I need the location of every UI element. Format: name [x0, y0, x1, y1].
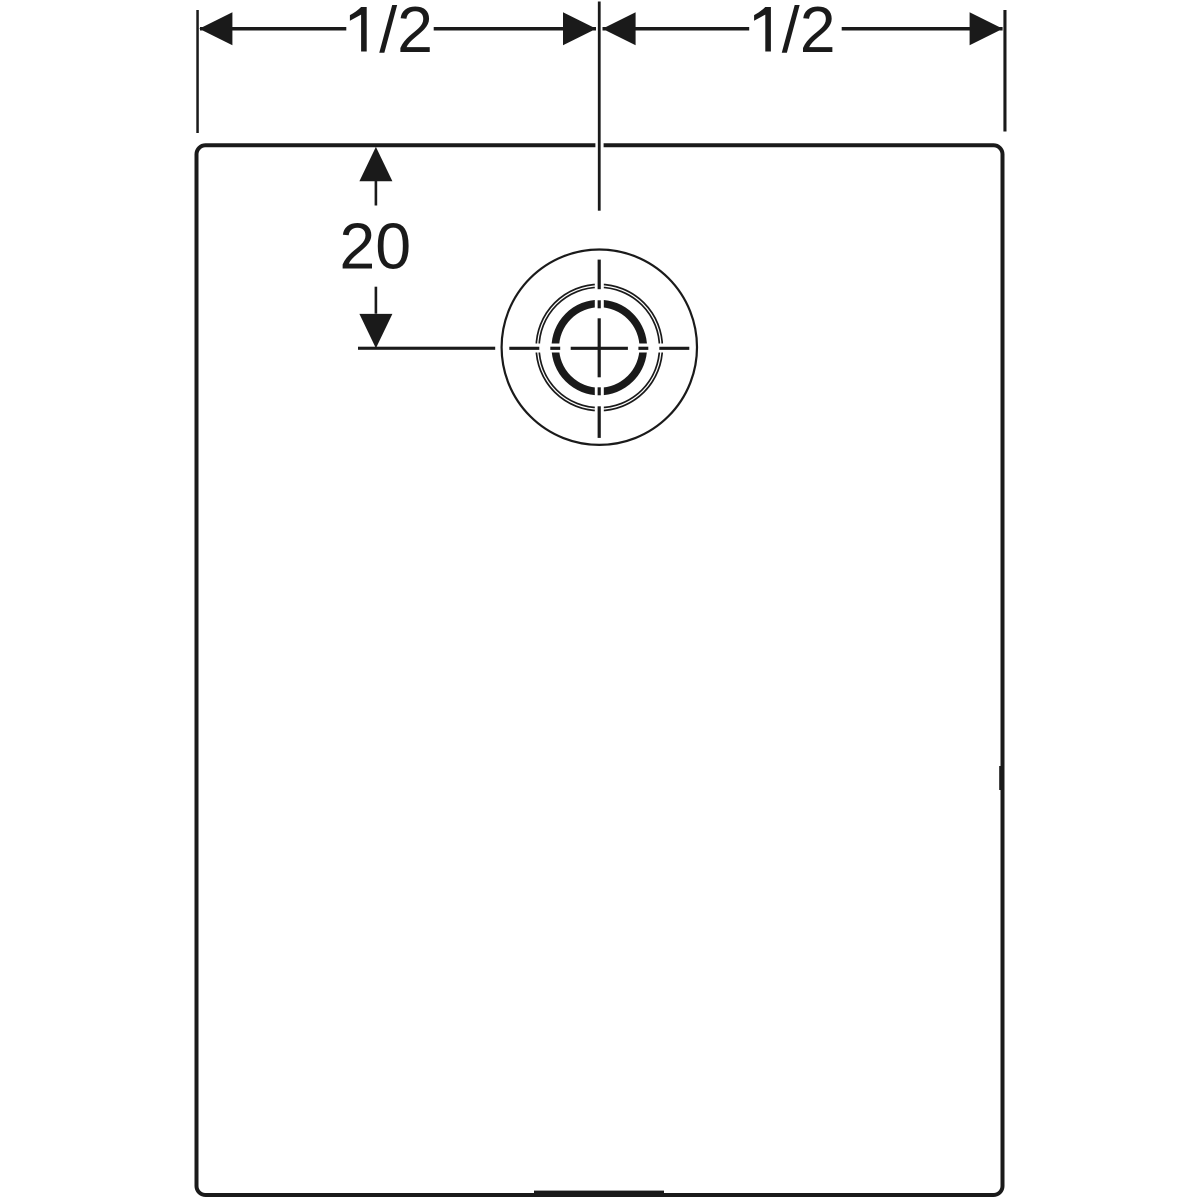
- svg-text:/2: /2: [782, 0, 836, 66]
- svg-text:20: 20: [339, 210, 411, 282]
- svg-text:/2: /2: [379, 0, 433, 66]
